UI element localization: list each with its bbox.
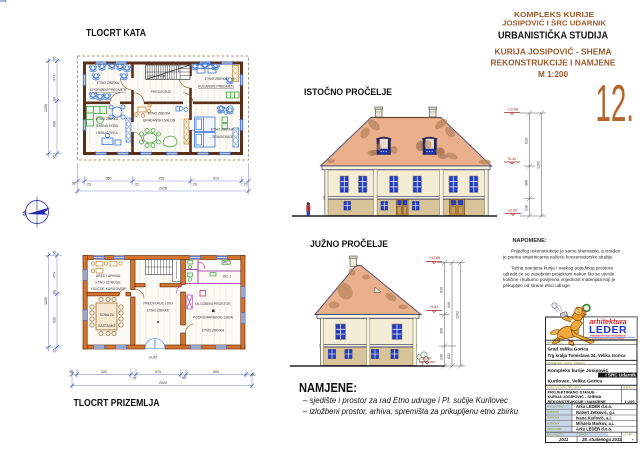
svg-text:URED I ARHIVA: URED I ARHIVA	[96, 274, 121, 278]
svg-text:ETNO ZBIRKA: ETNO ZBIRKA	[148, 112, 171, 116]
svg-text:22: 22	[135, 183, 139, 187]
svg-text:SOBA ZA: SOBA ZA	[100, 313, 115, 317]
svg-text:366: 366	[525, 180, 529, 186]
svg-text:474: 474	[53, 75, 57, 81]
svg-text:Kurilovec, Velika Gorica: Kurilovec, Velika Gorica	[548, 379, 603, 385]
svg-text:M 1:200: M 1:200	[538, 70, 568, 79]
svg-text:PREDVORJE: PREDVORJE	[151, 90, 172, 94]
svg-text:38: 38	[72, 182, 76, 186]
svg-text:23: 23	[244, 183, 248, 187]
svg-text:S: S	[23, 211, 28, 218]
svg-text:1200: 1200	[44, 104, 48, 112]
svg-text:ETNO ZBIRKA: ETNO ZBIRKA	[97, 81, 120, 85]
svg-text:KURIJA JOSIPOVIĆ - SHEMA: KURIJA JOSIPOVIĆ - SHEMA	[495, 46, 612, 57]
svg-text:Grad Velika Gorica: Grad Velika Gorica	[548, 346, 589, 351]
svg-text:PROJEKTIRAO: PROJEKTIRAO	[547, 406, 564, 409]
svg-text:474: 474	[53, 272, 57, 278]
svg-text:20: 20	[193, 183, 197, 187]
svg-text:733: 733	[159, 176, 165, 180]
svg-text:IZLOŽBENI PROSTOR: IZLOŽBENI PROSTOR	[195, 301, 231, 306]
svg-text:60: 60	[252, 373, 256, 377]
svg-text:TLOCRT PRIZEMLJA: TLOCRT PRIZEMLJA	[74, 398, 160, 409]
svg-text:ETNO UDRUGE: ETNO UDRUGE	[95, 281, 121, 285]
svg-text:28. studenoga 2011.: 28. studenoga 2011.	[581, 437, 623, 442]
svg-text:630: 630	[53, 317, 57, 323]
svg-text:PODRUMARSKOG SUĐA: PODRUMARSKOG SUĐA	[193, 316, 234, 320]
svg-text:366: 366	[440, 328, 444, 334]
svg-text:ETNO ZBIRKA: ETNO ZBIRKA	[202, 329, 225, 333]
svg-text:je prema smjernicama važeće ko: je prema smjernicama važeće konzervators…	[502, 254, 613, 259]
svg-text:količine i kulturno povijesna: količine i kulturno povijesna vrijednost…	[503, 277, 616, 282]
svg-text:SURADNIK: SURADNIK	[547, 422, 560, 425]
svg-text:630: 630	[53, 121, 57, 127]
svg-text:REKONSTRUKCIJE I NAMJENE: REKONSTRUKCIJE I NAMJENE	[491, 58, 616, 68]
svg-text:23: 23	[87, 183, 91, 187]
svg-text:35: 35	[53, 349, 57, 353]
svg-text:Točna namjena kurije i svakog: Točna namjena kurije i svakog pojedinog …	[511, 266, 613, 271]
svg-text:ODGOVORNI: ODGOVORNI	[547, 428, 562, 431]
svg-text:WC 2: WC 2	[223, 275, 232, 279]
svg-text:prikupljen od strane etno udru: prikupljen od strane etno udruge.	[503, 283, 571, 288]
svg-text:Arka LEDER d.o.o.: Arka LEDER d.o.o.	[576, 427, 612, 432]
svg-text:1262: 1262	[456, 311, 460, 319]
svg-text:SURADNIK: SURADNIK	[547, 411, 560, 414]
svg-text:550: 550	[106, 176, 112, 180]
svg-text:JOSIPOVIĆ I ŠRC UDARNIK: JOSIPOVIĆ I ŠRC UDARNIK	[502, 19, 607, 28]
svg-text:LIST BR.: LIST BR.	[623, 434, 633, 437]
svg-text:620: 620	[525, 138, 529, 144]
svg-text:NAPOMENE:: NAPOMENE:	[513, 238, 547, 244]
svg-text:I SUČIJE KURILOVEC: I SUČIJE KURILOVEC	[91, 286, 126, 291]
svg-text:arhitektonski ured, ured ovl.: arhitektonski ured, ured ovl. arhitekta	[592, 337, 626, 340]
svg-text:60: 60	[182, 376, 186, 380]
svg-text:2011: 2011	[558, 437, 569, 442]
svg-text:2028: 2028	[159, 186, 167, 190]
svg-text:Prijedlog rekonstrukcije je sa: Prijedlog rekonstrukcije je samo shemats…	[511, 249, 621, 254]
svg-text:±0.00: ±0.00	[508, 209, 517, 213]
svg-text:URBANISTIČKA STUDIJA: URBANISTIČKA STUDIJA	[498, 30, 608, 42]
svg-text:- SPAVAONICE: - SPAVAONICE	[210, 135, 234, 139]
svg-text:30: 30	[53, 97, 57, 101]
svg-text:NAMJENE:: NAMJENE:	[299, 381, 357, 395]
svg-text:Robert Zetković, g.i.: Robert Zetković, g.i.	[576, 410, 615, 415]
svg-text:70: 70	[132, 377, 136, 381]
svg-text:620: 620	[440, 287, 444, 293]
svg-text:i ŠRC Udarnik: i ŠRC Udarnik	[605, 371, 636, 378]
svg-text:TLOCRT KATA: TLOCRT KATA	[86, 28, 146, 39]
svg-text:+5.62: +5.62	[429, 305, 438, 309]
svg-text:Ivana Karlović, a.i.: Ivana Karlović, a.i.	[576, 415, 612, 420]
svg-text:35: 35	[53, 57, 57, 61]
svg-text:12.: 12.	[596, 74, 635, 132]
svg-text:2020: 2020	[159, 381, 167, 385]
svg-text:236: 236	[440, 354, 444, 360]
svg-text:ETNO ZBIRKA: ETNO ZBIRKA	[205, 77, 228, 81]
svg-text:JUŽNO PROČELJE: JUŽNO PROČELJE	[310, 238, 388, 250]
svg-text:KUĆANSKI PREDMETI: KUĆANSKI PREDMETI	[198, 84, 234, 89]
svg-text:640: 640	[447, 302, 451, 308]
svg-text:±0.00: ±0.00	[422, 357, 431, 361]
svg-text:SURADNIK: SURADNIK	[547, 417, 560, 420]
svg-text:PREDVORJE I DIO: PREDVORJE I DIO	[143, 302, 173, 306]
svg-text:+12.88: +12.88	[429, 256, 440, 260]
svg-text:699: 699	[213, 370, 219, 374]
svg-text:+6.42: +6.42	[507, 157, 516, 161]
svg-text:GRAĐEVINA - NAZIV I ADRESA: GRAĐEVINA - NAZIV I ADRESA	[547, 361, 585, 365]
svg-text:– sjedište i prostor za rad Et: – sjedište i prostor za rad Etno udruge …	[302, 396, 508, 405]
svg-text:35: 35	[69, 370, 73, 374]
svg-text:Arka LEDER d.o.o.: Arka LEDER d.o.o.	[576, 404, 612, 409]
svg-text:35: 35	[53, 251, 57, 255]
svg-text:236: 236	[525, 205, 529, 211]
svg-text:1262: 1262	[537, 161, 541, 169]
svg-text:ULAZ: ULAZ	[149, 356, 158, 360]
svg-text:+12.88: +12.88	[507, 108, 518, 112]
svg-text:WC 1: WC 1	[223, 261, 232, 265]
svg-text:SASTANKE: SASTANKE	[98, 324, 117, 328]
svg-text:GRAĐANSKI SALON: GRAĐANSKI SALON	[143, 119, 176, 123]
svg-text:ETNO ZBIRKA: ETNO ZBIRKA	[211, 128, 234, 132]
svg-text:– izložbeni prostor, arhiva, s: – izložbeni prostor, arhiva, spremišta z…	[302, 407, 519, 416]
svg-text:575: 575	[155, 370, 161, 374]
svg-text:ISTOČNO PROČELJE: ISTOČNO PROČELJE	[304, 86, 392, 98]
svg-text:RADNA SOBA: RADNA SOBA	[96, 124, 119, 128]
svg-text:35: 35	[53, 155, 57, 159]
svg-text:Mihaela Markov, a.i.: Mihaela Markov, a.i.	[576, 421, 614, 426]
svg-text:UPORABNI PREDMETI: UPORABNI PREDMETI	[90, 88, 126, 92]
svg-text:odredit će se zasebnim projekt: odredit će se zasebnim projektom nakon š…	[503, 271, 615, 276]
svg-text:MJERILO: MJERILO	[623, 385, 634, 389]
svg-text:Trg kralja Tomislava 34, Velik: Trg kralja Tomislava 34, Velika Gorica	[548, 353, 627, 358]
svg-text:1200: 1200	[44, 297, 48, 305]
svg-text:632: 632	[447, 353, 451, 359]
svg-text:I BIBLIOTEKA: I BIBLIOTEKA	[96, 131, 118, 135]
svg-text:30: 30	[53, 290, 57, 294]
svg-text:520: 520	[101, 370, 107, 374]
svg-text:ETNO ZBIRKE: ETNO ZBIRKE	[147, 309, 170, 313]
svg-text:619: 619	[213, 176, 219, 180]
svg-text:ETNO ZBIRKA: ETNO ZBIRKA	[96, 117, 119, 121]
